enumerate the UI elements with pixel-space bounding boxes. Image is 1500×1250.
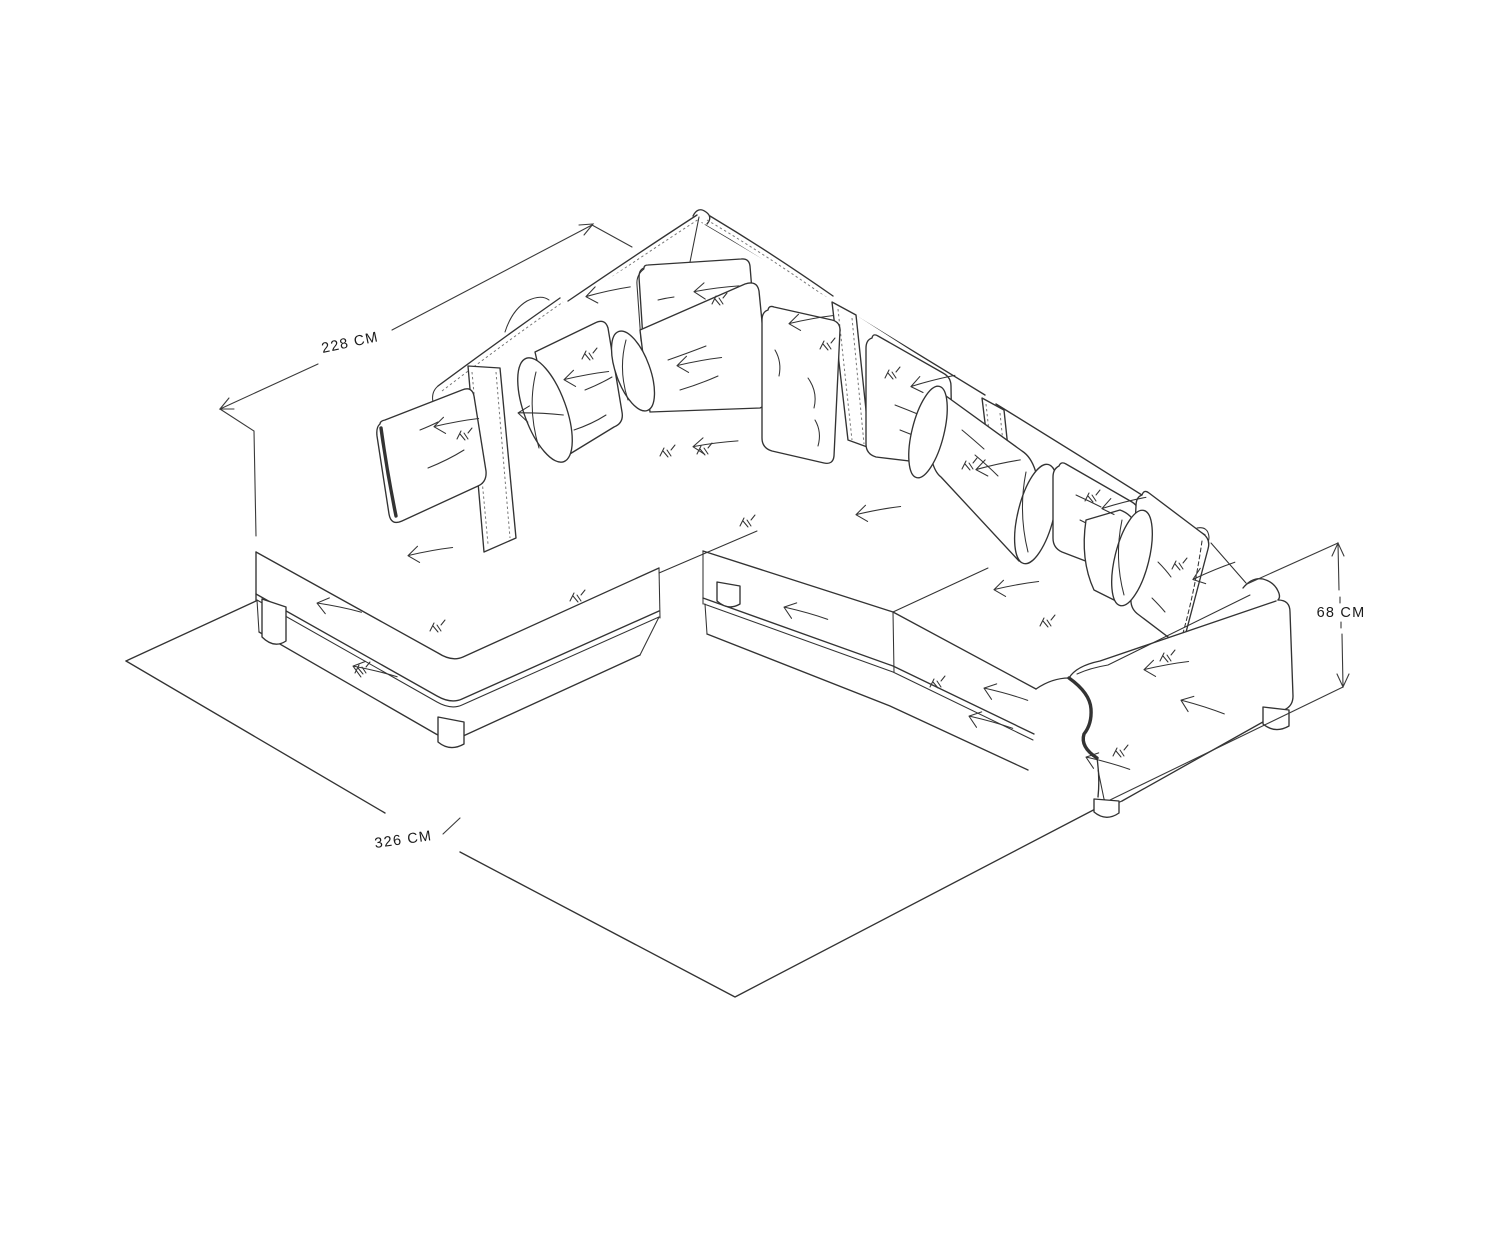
back-cushion: [762, 306, 840, 463]
sofa-technical-drawing: 228 CM 326 CM: [0, 0, 1500, 1250]
floor-outline: [126, 601, 1103, 997]
dimension-front-width: 326 CM: [374, 818, 460, 852]
sofa-leg: [262, 599, 286, 644]
sofa: [256, 210, 1301, 818]
sofa-leg: [717, 582, 740, 607]
technical-drawing-canvas: 228 CM 326 CM: [0, 0, 1500, 1250]
dimension-label-back-width: 228 CM: [320, 329, 380, 357]
sofa-leg: [438, 717, 464, 748]
sofa-leg: [1094, 799, 1119, 817]
sofa-leg: [1263, 707, 1289, 730]
dimension-label-front-width: 326 CM: [374, 828, 434, 852]
dimension-label-height: 68 CM: [1317, 605, 1366, 621]
